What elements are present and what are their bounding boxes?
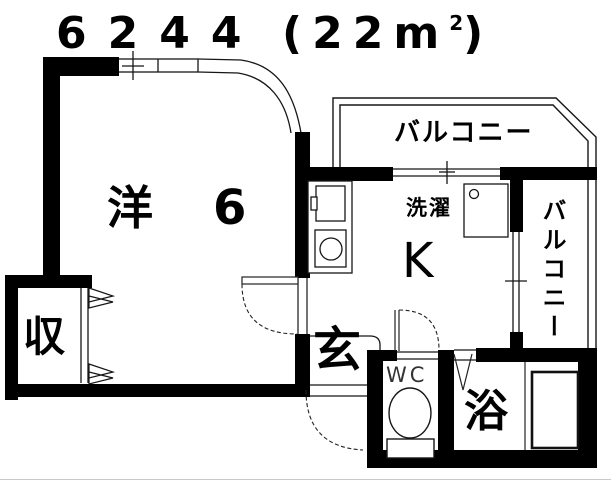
main-room-door [242, 277, 298, 334]
balcony-right-railing [588, 170, 596, 352]
label-balcony-right: バルコニー [540, 198, 564, 343]
closet-door-arrows [89, 288, 113, 384]
wc-door [395, 310, 439, 351]
bathtub-icon [525, 362, 578, 450]
stove-burner-icon [320, 238, 342, 260]
label-balcony-top: バルコニー [394, 120, 533, 146]
label-laundry: 洗濯 [406, 198, 452, 219]
curved-corner-window [198, 59, 301, 133]
sink-icon [316, 186, 345, 221]
label-toilet: WC [386, 365, 427, 386]
label-bath: 浴 [464, 390, 508, 434]
toilet-icon [387, 388, 434, 458]
floor-plan: 6244 (22m2) 洋 6 バルコニー バルコニー 洗濯 K 玄 WC 浴 … [0, 0, 611, 480]
kitchen-window [393, 161, 500, 184]
unit-area: (22m2) [282, 8, 493, 59]
label-entrance: 玄 [313, 326, 361, 374]
floor-plan-drawing [0, 0, 611, 480]
label-main-room-size: 6 [213, 184, 246, 232]
unit-number: 6244 [56, 8, 262, 59]
label-kitchen: K [402, 237, 433, 285]
label-storage: 収 [23, 316, 65, 358]
closet-door-track [81, 288, 88, 383]
faucet-icon [311, 197, 317, 210]
plan-title: 6244 (22m2) [0, 4, 611, 56]
washing-machine-icon [464, 184, 508, 237]
kitchen-counter [308, 181, 352, 273]
kitchen-side-window [505, 231, 527, 333]
label-main-room: 洋 [107, 185, 153, 231]
entrance-door [306, 390, 363, 450]
